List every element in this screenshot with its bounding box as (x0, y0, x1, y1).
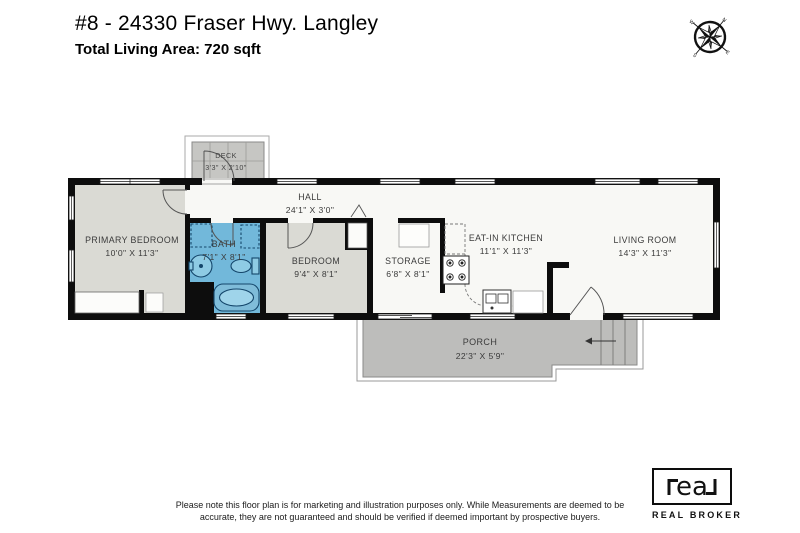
bedroom-dims: 9'4" X 8'1" (294, 269, 337, 279)
kitchen-dims: 11'1" X 11'3" (480, 246, 533, 256)
bath-label: BATH (212, 239, 236, 249)
porch-label: PORCH (463, 337, 498, 347)
primary-bedroom-label: PRIMARY BEDROOM (85, 235, 179, 245)
dishwasher (513, 291, 543, 313)
compass-east-label: E (724, 49, 731, 56)
compass-west-label: W (688, 19, 696, 27)
hall-dims: 24'1" X 3'0" (286, 205, 335, 215)
bath-dims: 7'1" X 8'1" (202, 252, 245, 262)
bedroom-label: BEDROOM (292, 256, 340, 266)
living-room-label: LIVING ROOM (613, 235, 676, 245)
storage-shelf (399, 224, 429, 247)
kitchen-label: EAT-IN KITCHEN (469, 233, 543, 243)
bath-chase-block (190, 282, 214, 313)
deck-dims: 3'3" X 2'10" (205, 163, 246, 172)
floor-plan-page: #8 - 24330 Fraser Hwy. Langley Total Liv… (0, 0, 800, 533)
floor-plan-drawing: PRIMARY BEDROOM 10'0" X 11'3" BATH 7'1" … (0, 0, 800, 533)
deck-label: DECK (215, 151, 237, 160)
logo-ea-letters: ea (676, 475, 708, 499)
disclaimer-text: Please note this floor plan is for marke… (170, 499, 630, 523)
porch-dims: 22'3" X 5'9" (456, 351, 505, 361)
primary-bedroom-dims: 10'0" X 11'3" (105, 248, 158, 258)
hall-label: HALL (298, 192, 322, 202)
brand-logo: ea REAL BROKER (652, 468, 733, 520)
real-broker-label: REAL BROKER (652, 510, 733, 520)
porch-area (357, 315, 643, 381)
sliding-door (378, 314, 432, 319)
compass-icon: N E S W (673, 1, 746, 74)
primary-nook (75, 292, 139, 313)
compass-south-label: S (691, 52, 698, 59)
real-wordmark: ea (652, 468, 732, 505)
living-room-dims: 14'3" X 11'3" (618, 248, 671, 258)
bedroom-closet (348, 223, 367, 248)
storage-dims: 6'8" X 8'1" (386, 269, 429, 279)
real-wordmark-glyphs: ea (665, 475, 719, 499)
storage-label: STORAGE (385, 256, 431, 266)
stove (443, 256, 469, 284)
